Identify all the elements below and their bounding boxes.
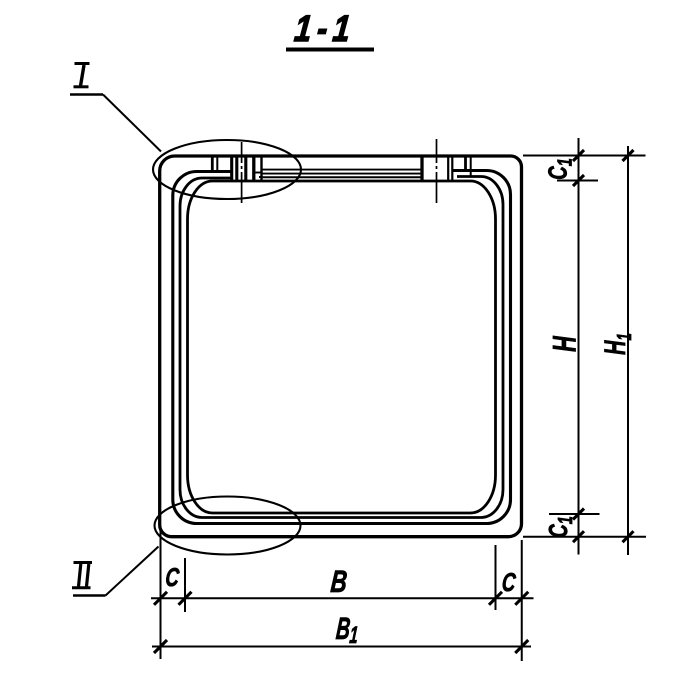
svg-text:C: C <box>501 567 518 597</box>
svg-text:B: B <box>329 563 348 598</box>
svg-text:C1: C1 <box>542 158 576 180</box>
svg-text:C: C <box>164 562 181 592</box>
svg-text:B1: B1 <box>335 613 360 649</box>
svg-text:H: H <box>546 335 582 352</box>
svg-text:H1: H1 <box>599 333 636 355</box>
svg-text:C1: C1 <box>543 516 577 538</box>
svg-text:1-1: 1-1 <box>293 8 358 49</box>
